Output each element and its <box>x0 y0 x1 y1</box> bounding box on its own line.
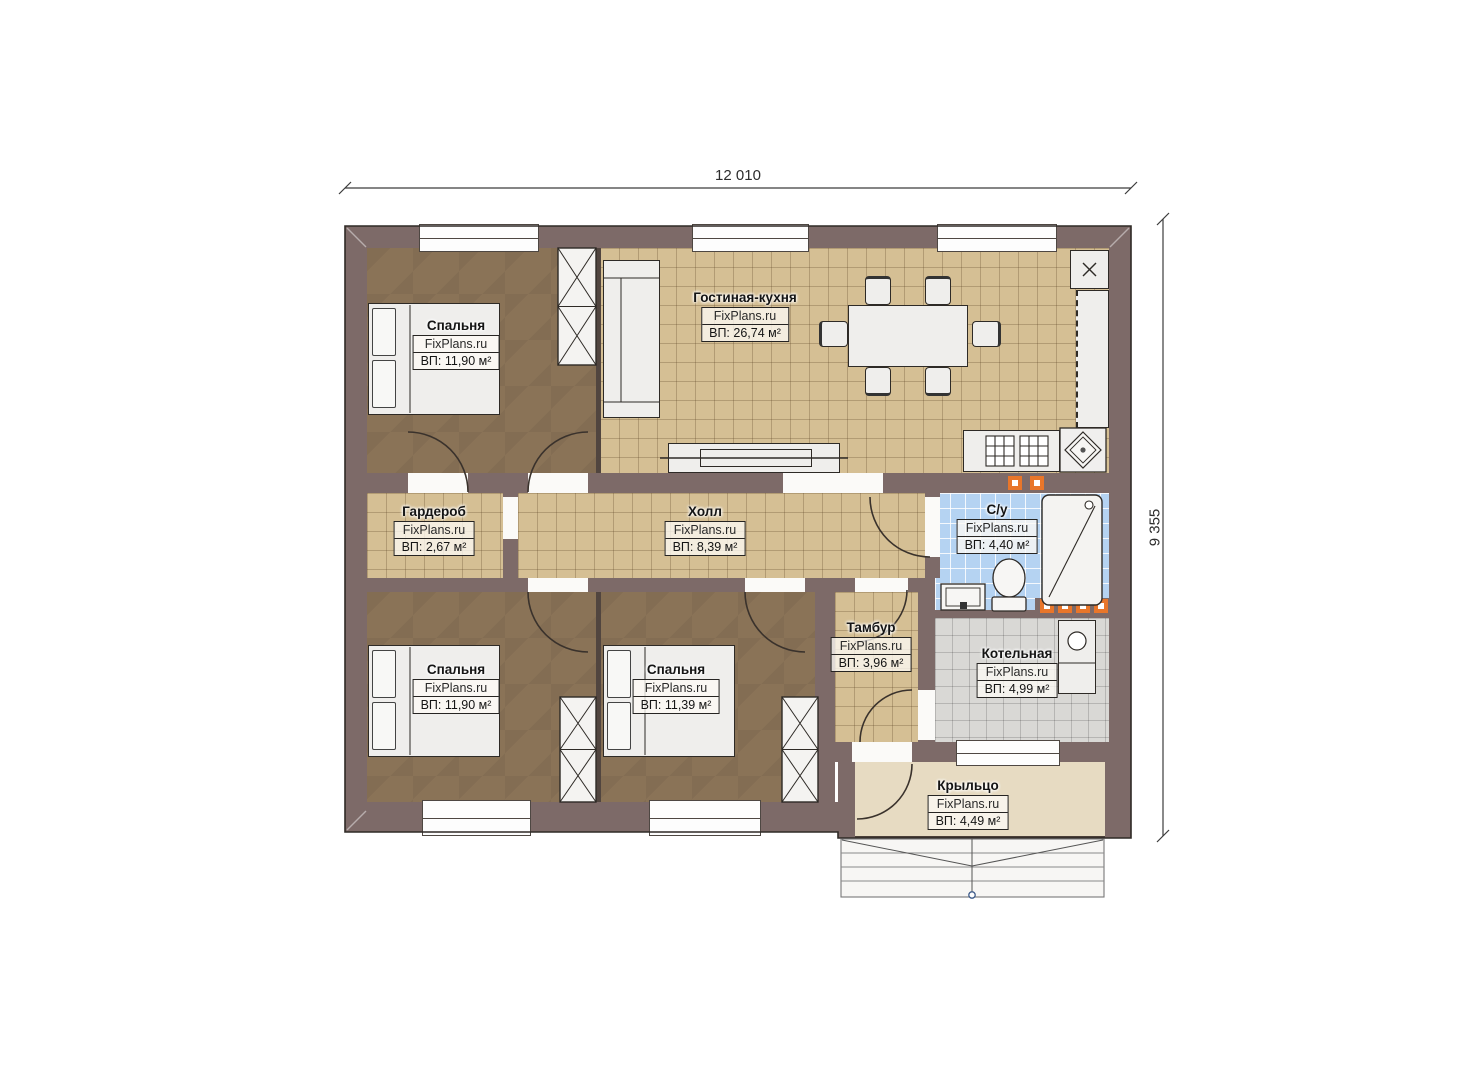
watermark-text: FixPlans.ru <box>395 522 474 539</box>
opening-bedroom1-left <box>408 473 468 493</box>
floor-plan-canvas: Спальня FixPlans.ru ВП: 11,90 м² Гостина… <box>0 0 1473 1080</box>
pillow <box>372 308 396 356</box>
room-label-bathroom: С/у FixPlans.ru ВП: 4,40 м² <box>957 502 1038 554</box>
room-info-box: FixPlans.ru ВП: 11,90 м² <box>413 679 500 714</box>
pillow <box>372 360 396 408</box>
wall-corridor-top <box>367 473 1109 493</box>
radiator-bath-1 <box>1040 599 1054 613</box>
dimension-width-label: 12 010 <box>715 167 761 184</box>
kitchen-counter-stove <box>963 430 1060 472</box>
kitchen-wall-cabinet <box>1070 250 1109 289</box>
room-label-bedroom-3: Спальня FixPlans.ru ВП: 11,39 м² <box>633 662 720 714</box>
room-area: ВП: 2,67 м² <box>395 539 474 555</box>
room-info-box: FixPlans.ru ВП: 4,40 м² <box>957 519 1038 554</box>
room-info-box: FixPlans.ru ВП: 11,39 м² <box>633 679 720 714</box>
watermark-text: FixPlans.ru <box>978 664 1057 681</box>
room-label-living-kitchen: Гостиная-кухня FixPlans.ru ВП: 26,74 м² <box>693 290 796 342</box>
room-label-boiler-room: Котельная FixPlans.ru ВП: 4,99 м² <box>977 646 1058 698</box>
room-name: Холл <box>665 504 746 519</box>
watermark-text: FixPlans.ru <box>414 680 499 697</box>
room-name: Спальня <box>633 662 720 677</box>
pillow <box>607 702 631 750</box>
wall-bedroom2-bedroom3 <box>596 592 601 802</box>
room-name: Котельная <box>977 646 1058 661</box>
wall-right <box>1109 248 1131 762</box>
watermark-text: FixPlans.ru <box>832 638 911 655</box>
room-info-box: FixPlans.ru ВП: 4,49 м² <box>928 795 1009 830</box>
room-label-vestibule: Тамбур FixPlans.ru ВП: 3,96 м² <box>831 620 912 672</box>
watermark-text: FixPlans.ru <box>929 796 1008 813</box>
pillow <box>607 650 631 698</box>
watermark-text: FixPlans.ru <box>958 520 1037 537</box>
room-area: ВП: 4,99 м² <box>978 681 1057 697</box>
wall-right-porch <box>1105 762 1131 838</box>
room-info-box: FixPlans.ru ВП: 3,96 м² <box>831 637 912 672</box>
room-area: ВП: 11,90 м² <box>414 353 499 369</box>
room-name: Тамбур <box>831 620 912 635</box>
opening-vestibule-boiler <box>918 690 935 740</box>
window-boiler-room <box>956 740 1060 766</box>
room-name: Спальня <box>413 318 500 333</box>
room-name: Гостиная-кухня <box>693 290 796 305</box>
radiator-bath-2 <box>1058 599 1072 613</box>
watermark-text: FixPlans.ru <box>414 336 499 353</box>
wall-bedroom1-living <box>596 248 601 473</box>
room-label-wardrobe-room: Гардероб FixPlans.ru ВП: 2,67 м² <box>394 504 475 556</box>
room-area: ВП: 26,74 м² <box>702 325 788 341</box>
window-top-living-1 <box>692 224 809 252</box>
dimension-height-label: 9 355 <box>1147 498 1164 558</box>
room-label-bedroom-1: Спальня FixPlans.ru ВП: 11,90 м² <box>413 318 500 370</box>
opening-hall-vestibule <box>855 578 908 592</box>
wall-corridor-bottom <box>367 578 935 592</box>
pillow <box>372 702 396 750</box>
room-label-bedroom-2: Спальня FixPlans.ru ВП: 11,90 м² <box>413 662 500 714</box>
room-area: ВП: 11,90 м² <box>414 697 499 713</box>
radiator-kitchen-1 <box>1008 476 1022 490</box>
wall-bottom <box>345 802 841 832</box>
watermark-text: FixPlans.ru <box>702 308 788 325</box>
opening-bedroom2 <box>528 578 588 592</box>
room-label-porch: Крыльцо FixPlans.ru ВП: 4,49 м² <box>928 778 1009 830</box>
room-info-box: FixPlans.ru ВП: 4,99 м² <box>977 663 1058 698</box>
porch-steps <box>841 839 1104 898</box>
dining-table <box>848 305 968 367</box>
chair <box>865 276 891 305</box>
chair <box>819 321 848 347</box>
opening-wardrobe-door <box>503 497 518 539</box>
chair <box>925 367 951 396</box>
window-top-bedroom1 <box>419 224 539 252</box>
radiator-bath-3 <box>1076 599 1090 613</box>
pillow <box>372 650 396 698</box>
opening-bedroom3 <box>745 578 805 592</box>
room-info-box: FixPlans.ru ВП: 11,90 м² <box>413 335 500 370</box>
room-name: Гардероб <box>394 504 475 519</box>
sofa <box>603 260 660 418</box>
room-info-box: FixPlans.ru ВП: 26,74 м² <box>701 307 789 342</box>
room-area: ВП: 3,96 м² <box>832 655 911 671</box>
opening-living-hall <box>783 473 883 493</box>
wall-left <box>345 248 367 832</box>
window-bottom-bedroom2 <box>422 800 531 836</box>
watermark-text: FixPlans.ru <box>634 680 719 697</box>
kitchen-counter-right <box>1076 290 1109 428</box>
room-info-box: FixPlans.ru ВП: 8,39 м² <box>665 521 746 556</box>
chair <box>865 367 891 396</box>
tv <box>700 449 812 467</box>
radiator-kitchen-2 <box>1030 476 1044 490</box>
room-area: ВП: 4,49 м² <box>929 813 1008 829</box>
room-info-box: FixPlans.ru ВП: 2,67 м² <box>394 521 475 556</box>
window-bottom-bedroom3 <box>649 800 761 836</box>
wall-porch-left <box>838 762 855 838</box>
radiator-bath-4 <box>1094 599 1108 613</box>
chair <box>972 321 1001 347</box>
room-name: Крыльцо <box>928 778 1009 793</box>
opening-bedroom1-right <box>528 473 588 493</box>
chair <box>925 276 951 305</box>
watermark-text: FixPlans.ru <box>666 522 745 539</box>
room-area: ВП: 8,39 м² <box>666 539 745 555</box>
window-top-living-2 <box>937 224 1057 252</box>
room-name: Спальня <box>413 662 500 677</box>
boiler-unit <box>1058 620 1096 694</box>
room-area: ВП: 11,39 м² <box>634 697 719 713</box>
opening-bathroom-door <box>925 497 940 557</box>
room-area: ВП: 4,40 м² <box>958 537 1037 553</box>
opening-entrance-door <box>852 742 912 762</box>
room-name: С/у <box>957 502 1038 517</box>
room-label-hall: Холл FixPlans.ru ВП: 8,39 м² <box>665 504 746 556</box>
